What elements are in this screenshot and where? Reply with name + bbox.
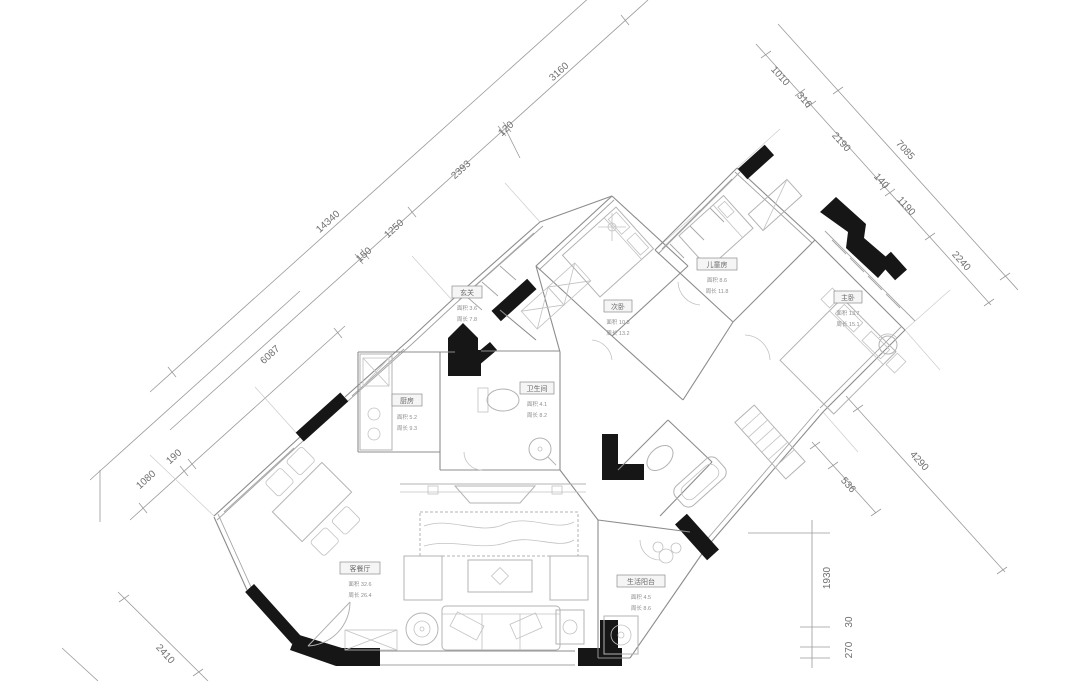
hall-double-door [521, 263, 591, 329]
dim-vert-0: 1930 [822, 566, 833, 589]
svg-text:厨房: 厨房 [400, 396, 414, 405]
dim-tr-0: 1010 [768, 64, 791, 88]
dim-chain-top-left: 14340 150 1250 2393 120 3160 [150, 0, 648, 430]
svg-text:面积 4.1: 面积 4.1 [527, 401, 547, 408]
svg-text:周长 9.3: 周长 9.3 [397, 424, 417, 432]
structural-walls [245, 145, 907, 666]
extension-lines [150, 129, 950, 516]
svg-text:周长 8.2: 周长 8.2 [527, 411, 547, 419]
dim-chain-bottom-left: 2410 [62, 592, 208, 681]
room-label-kitchen: 厨房 面积 5.2 周长 9.3 [392, 394, 422, 432]
svg-text:次卧: 次卧 [611, 302, 625, 311]
svg-text:面积 4.5: 面积 4.5 [631, 594, 651, 601]
living-rug [420, 512, 578, 556]
bath-door-arc [464, 452, 482, 470]
room-label-master: 主卧 面积 13.7 周长 15.1 [834, 291, 862, 328]
svg-text:面积 5.2: 面积 5.2 [397, 414, 417, 421]
svg-text:玄关: 玄关 [460, 288, 474, 297]
svg-text:周长 11.8: 周长 11.8 [706, 287, 729, 295]
dim-tr-5: 2240 [949, 249, 972, 273]
coffee-table [468, 560, 532, 592]
room-label-bath: 卫生间 面积 4.1 周长 8.2 [520, 382, 554, 419]
bedroom2-door-arc [592, 340, 612, 360]
interior-walls [358, 266, 733, 658]
svg-text:面积 32.6: 面积 32.6 [348, 581, 371, 588]
ceiling-fan [598, 213, 626, 241]
hall-wardrobe [735, 405, 805, 479]
dim-tr-1: 316 [794, 90, 814, 110]
floor-plan-canvas: 14340 150 1250 2393 120 3160 1010 316 21… [0, 0, 1080, 681]
dim-tr-3: 140 [871, 171, 891, 191]
master-door-arc [745, 335, 770, 360]
sofa [406, 606, 584, 650]
svg-text:生活阳台: 生活阳台 [627, 577, 655, 586]
kitchen-counter [360, 354, 392, 450]
svg-text:周长 8.6: 周长 8.6 [631, 604, 651, 612]
dim-left-2: 190 [164, 447, 184, 467]
svg-text:面积 3.6: 面积 3.6 [457, 305, 477, 312]
bedroom2-bed [563, 207, 654, 297]
svg-text:面积 8.6: 面积 8.6 [707, 277, 727, 284]
dim-vert-1: 270 [844, 641, 855, 658]
svg-text:卫生间: 卫生间 [527, 384, 548, 393]
side-table-left [404, 556, 442, 600]
floor-plan-page: 14340 150 1250 2393 120 3160 1010 316 21… [0, 0, 1080, 681]
room-label-hall: 玄关 面积 3.6 周长 7.8 [452, 286, 482, 323]
wash-basin [529, 438, 551, 460]
dim-tr-4: 1190 [895, 195, 918, 219]
shoe-cabinet [345, 630, 397, 650]
svg-text:周长 26.4: 周长 26.4 [348, 591, 371, 599]
dim-chain-right-vertical: 1930 270 30 [748, 520, 855, 668]
room-label-kids: 儿童房 面积 8.6 周长 11.8 [697, 258, 737, 295]
dim-vert-2: 30 [844, 616, 855, 628]
dim-br-0: 536 [838, 475, 858, 495]
dim-chain-left: 6087 1080 190 [90, 291, 345, 522]
tv-cabinet [400, 484, 586, 503]
svg-text:面积 10.8: 面积 10.8 [606, 319, 629, 326]
dining-table [254, 444, 370, 560]
dim-left-1: 1080 [134, 468, 158, 491]
side-table-right [550, 556, 588, 600]
dim-overall-top-right: 7085 [893, 138, 916, 162]
dim-tl-3: 120 [496, 119, 516, 139]
kids-bed [679, 196, 753, 269]
svg-text:主卧: 主卧 [841, 293, 855, 302]
plant-table-left [406, 613, 438, 645]
room-label-balcony: 生活阳台 面积 4.5 周长 8.6 [617, 575, 665, 612]
room-labels: 客餐厅 面积 32.6 周长 26.4 厨房 面积 5.2 周长 9.3 玄关 … [340, 258, 862, 612]
dim-chain-bottom-right: 536 4290 [810, 396, 1007, 574]
svg-text:客餐厅: 客餐厅 [350, 564, 371, 573]
room-label-living: 客餐厅 面积 32.6 周长 26.4 [340, 562, 380, 599]
kids-door-arc [678, 282, 700, 305]
svg-text:周长 15.1: 周长 15.1 [836, 320, 859, 328]
svg-text:周长 7.8: 周长 7.8 [457, 315, 477, 323]
balcony-door-arc [640, 540, 660, 560]
svg-text:儿童房: 儿童房 [707, 260, 728, 269]
second-bath [642, 441, 729, 511]
bathroom-fixtures [478, 388, 556, 465]
dim-tl-2: 2393 [449, 158, 473, 181]
svg-text:周长 13.2: 周长 13.2 [606, 329, 629, 337]
svg-text:面积 13.7: 面积 13.7 [836, 310, 859, 317]
room-label-bedroom2: 次卧 面积 10.8 周长 13.2 [604, 300, 632, 337]
kids-wardrobe [748, 179, 801, 230]
dim-tr-2: 2190 [829, 130, 852, 154]
dim-br-1: 4290 [907, 449, 930, 473]
doors [308, 263, 770, 646]
master-bed [770, 288, 906, 424]
